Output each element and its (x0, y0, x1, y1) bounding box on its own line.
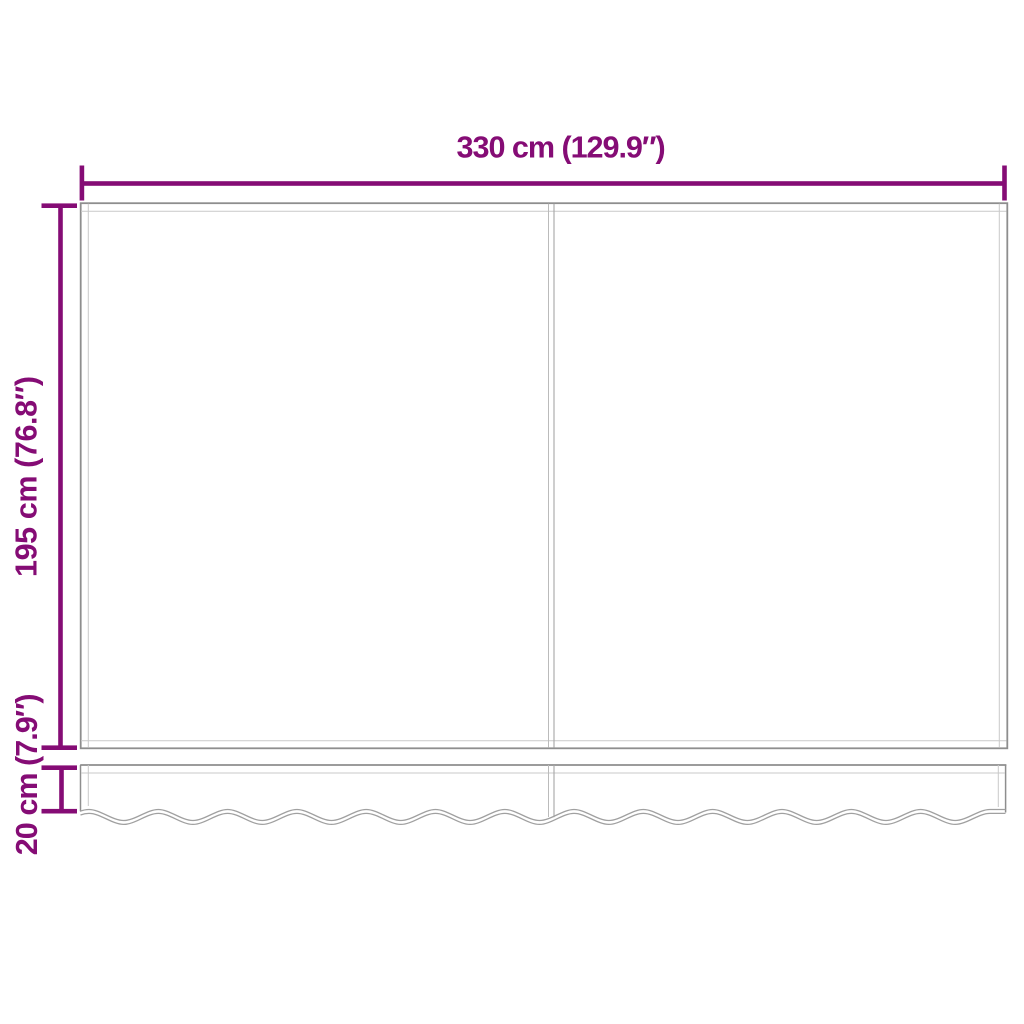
svg-text:330 cm (129.9″): 330 cm (129.9″) (457, 131, 665, 165)
svg-text:195 cm (76.8″): 195 cm (76.8″) (10, 376, 44, 577)
svg-text:20 cm (7.9″): 20 cm (7.9″) (10, 694, 44, 855)
